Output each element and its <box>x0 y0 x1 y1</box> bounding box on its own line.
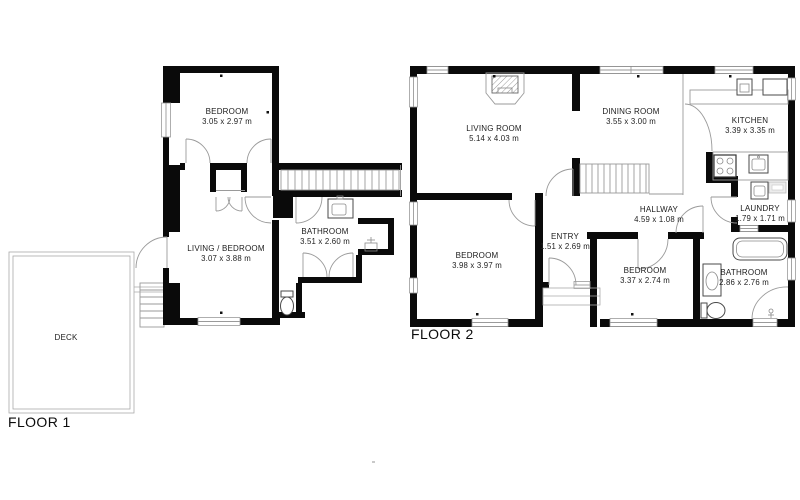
room-label-f1-deck: DECK <box>36 333 96 343</box>
room-label-f2-kitchen: KITCHEN 3.39 x 3.35 m <box>705 116 795 135</box>
room-label-f2-living-room: LIVING ROOM 5.14 x 4.03 m <box>449 124 539 143</box>
stairs-icon-floor2 <box>580 164 649 193</box>
room-label-f2-bedroom-2: BEDROOM 3.37 x 2.74 m <box>600 266 690 285</box>
room-label-f1-bedroom: BEDROOM 3.05 x 2.97 m <box>182 107 272 126</box>
sink-icon <box>328 196 353 218</box>
artifact-mark <box>372 461 375 463</box>
room-label-f2-hallway: HALLWAY 4.59 x 1.08 m <box>614 205 704 224</box>
window <box>740 226 758 232</box>
window <box>600 67 663 74</box>
floor2-walls <box>410 66 795 327</box>
floor-plan-svg <box>0 0 800 500</box>
window <box>162 103 171 137</box>
deck-stairs-icon <box>140 283 164 327</box>
laundry-sink-icon <box>751 182 768 199</box>
window <box>753 319 777 327</box>
stairs-icon-floor1 <box>281 170 399 190</box>
fireplace-icon <box>486 73 524 104</box>
window <box>427 67 448 74</box>
window <box>788 78 796 100</box>
window <box>410 278 418 293</box>
washer-icon <box>769 182 786 193</box>
window <box>472 319 508 327</box>
window <box>410 202 418 225</box>
room-label-f2-dining-room: DINING ROOM 3.55 x 3.00 m <box>586 107 676 126</box>
window <box>788 200 796 222</box>
bathtub-icon <box>733 238 787 260</box>
shower-icon <box>752 287 788 319</box>
floor1-label: FLOOR 1 <box>8 414 71 430</box>
kitchen-sink-icon <box>749 155 768 173</box>
floor2-label: FLOOR 2 <box>411 326 474 342</box>
window <box>715 67 753 74</box>
stove-icon <box>714 155 736 177</box>
floor-plan-canvas: BEDROOM 3.05 x 2.97 m LIVING / BEDROOM 3… <box>0 0 800 500</box>
room-label-f1-bathroom: BATHROOM 3.51 x 2.60 m <box>280 227 370 246</box>
toilet-icon <box>281 291 294 315</box>
window <box>610 319 657 327</box>
counter-appliance-icon <box>737 79 787 95</box>
room-label-f1-living-bedroom: LIVING / BEDROOM 3.07 x 3.88 m <box>171 244 281 263</box>
room-label-f2-laundry: LAUNDRY 1.79 x 1.71 m <box>732 204 788 223</box>
room-label-f2-entry: ENTRY 1.51 x 2.69 m <box>535 232 595 251</box>
floor1-walls <box>163 66 402 325</box>
room-label-f2-bedroom-1: BEDROOM 3.98 x 3.97 m <box>432 251 522 270</box>
window <box>410 77 418 107</box>
window <box>198 318 240 326</box>
room-label-f2-bathroom: BATHROOM 2.86 x 2.76 m <box>699 268 789 287</box>
toilet-icon <box>701 303 725 319</box>
